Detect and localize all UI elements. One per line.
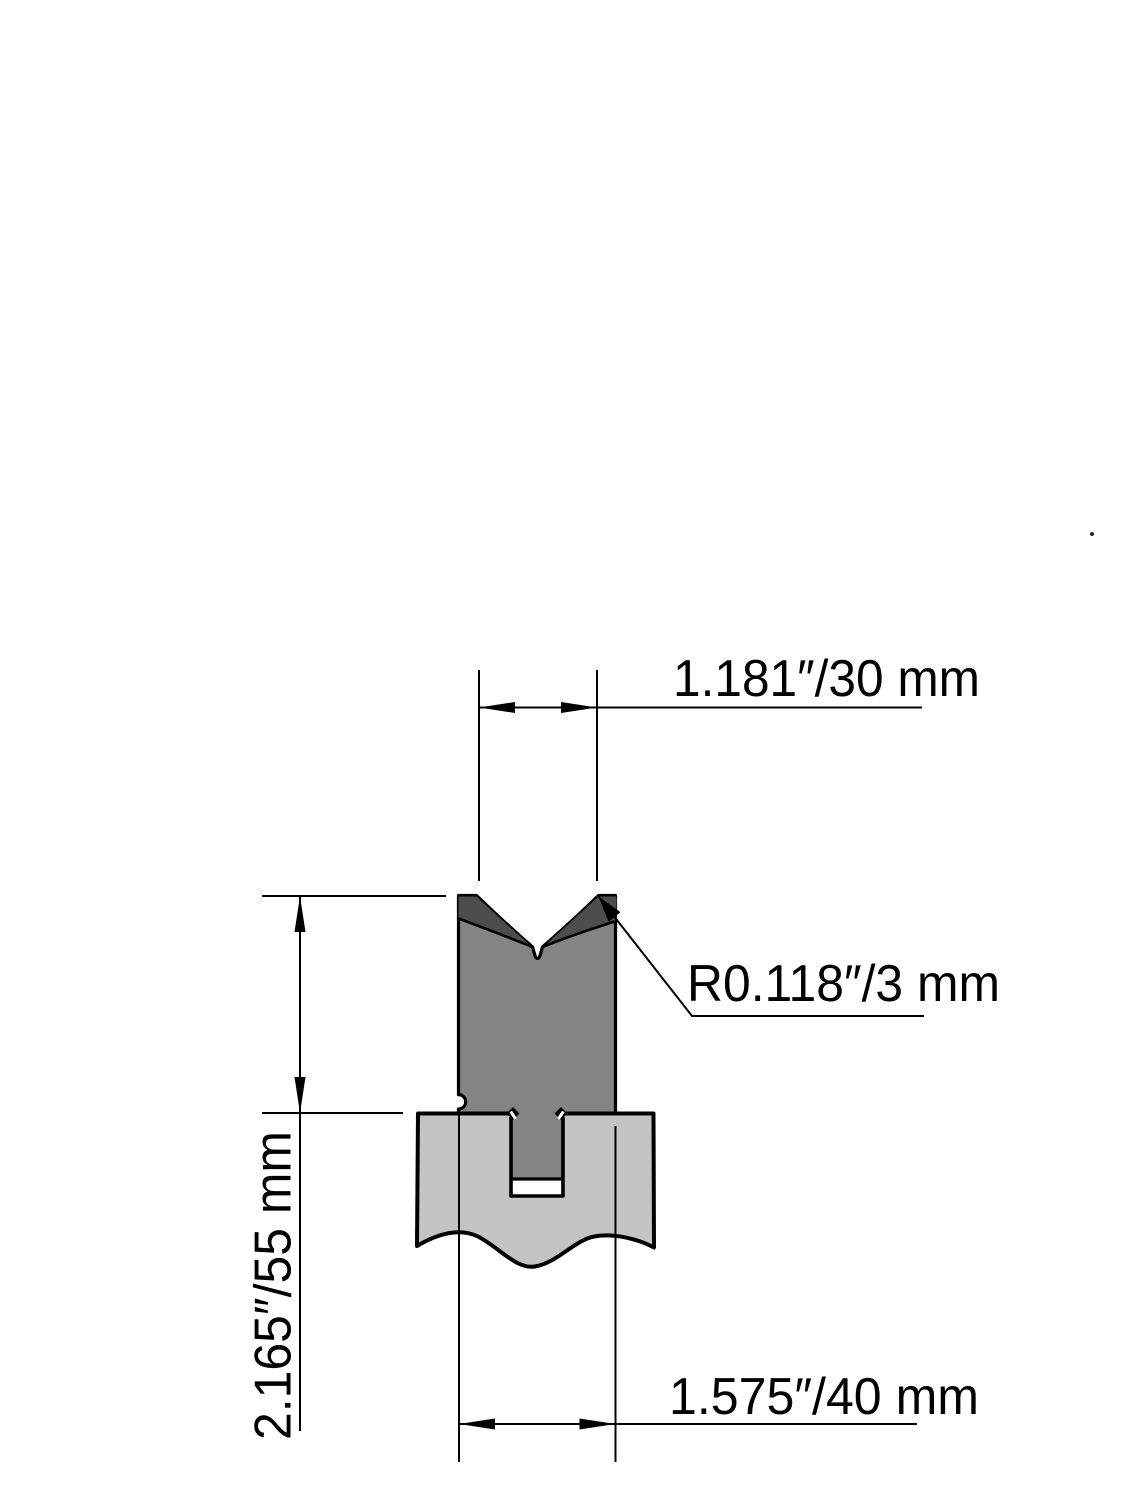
svg-text:R0.118″/3 mm: R0.118″/3 mm (687, 955, 1000, 1013)
svg-text:1.575″/40 mm: 1.575″/40 mm (669, 1368, 979, 1426)
svg-text:1.181″/30 mm: 1.181″/30 mm (673, 650, 980, 708)
svg-text:2.165″/55 mm: 2.165″/55 mm (245, 1131, 303, 1440)
